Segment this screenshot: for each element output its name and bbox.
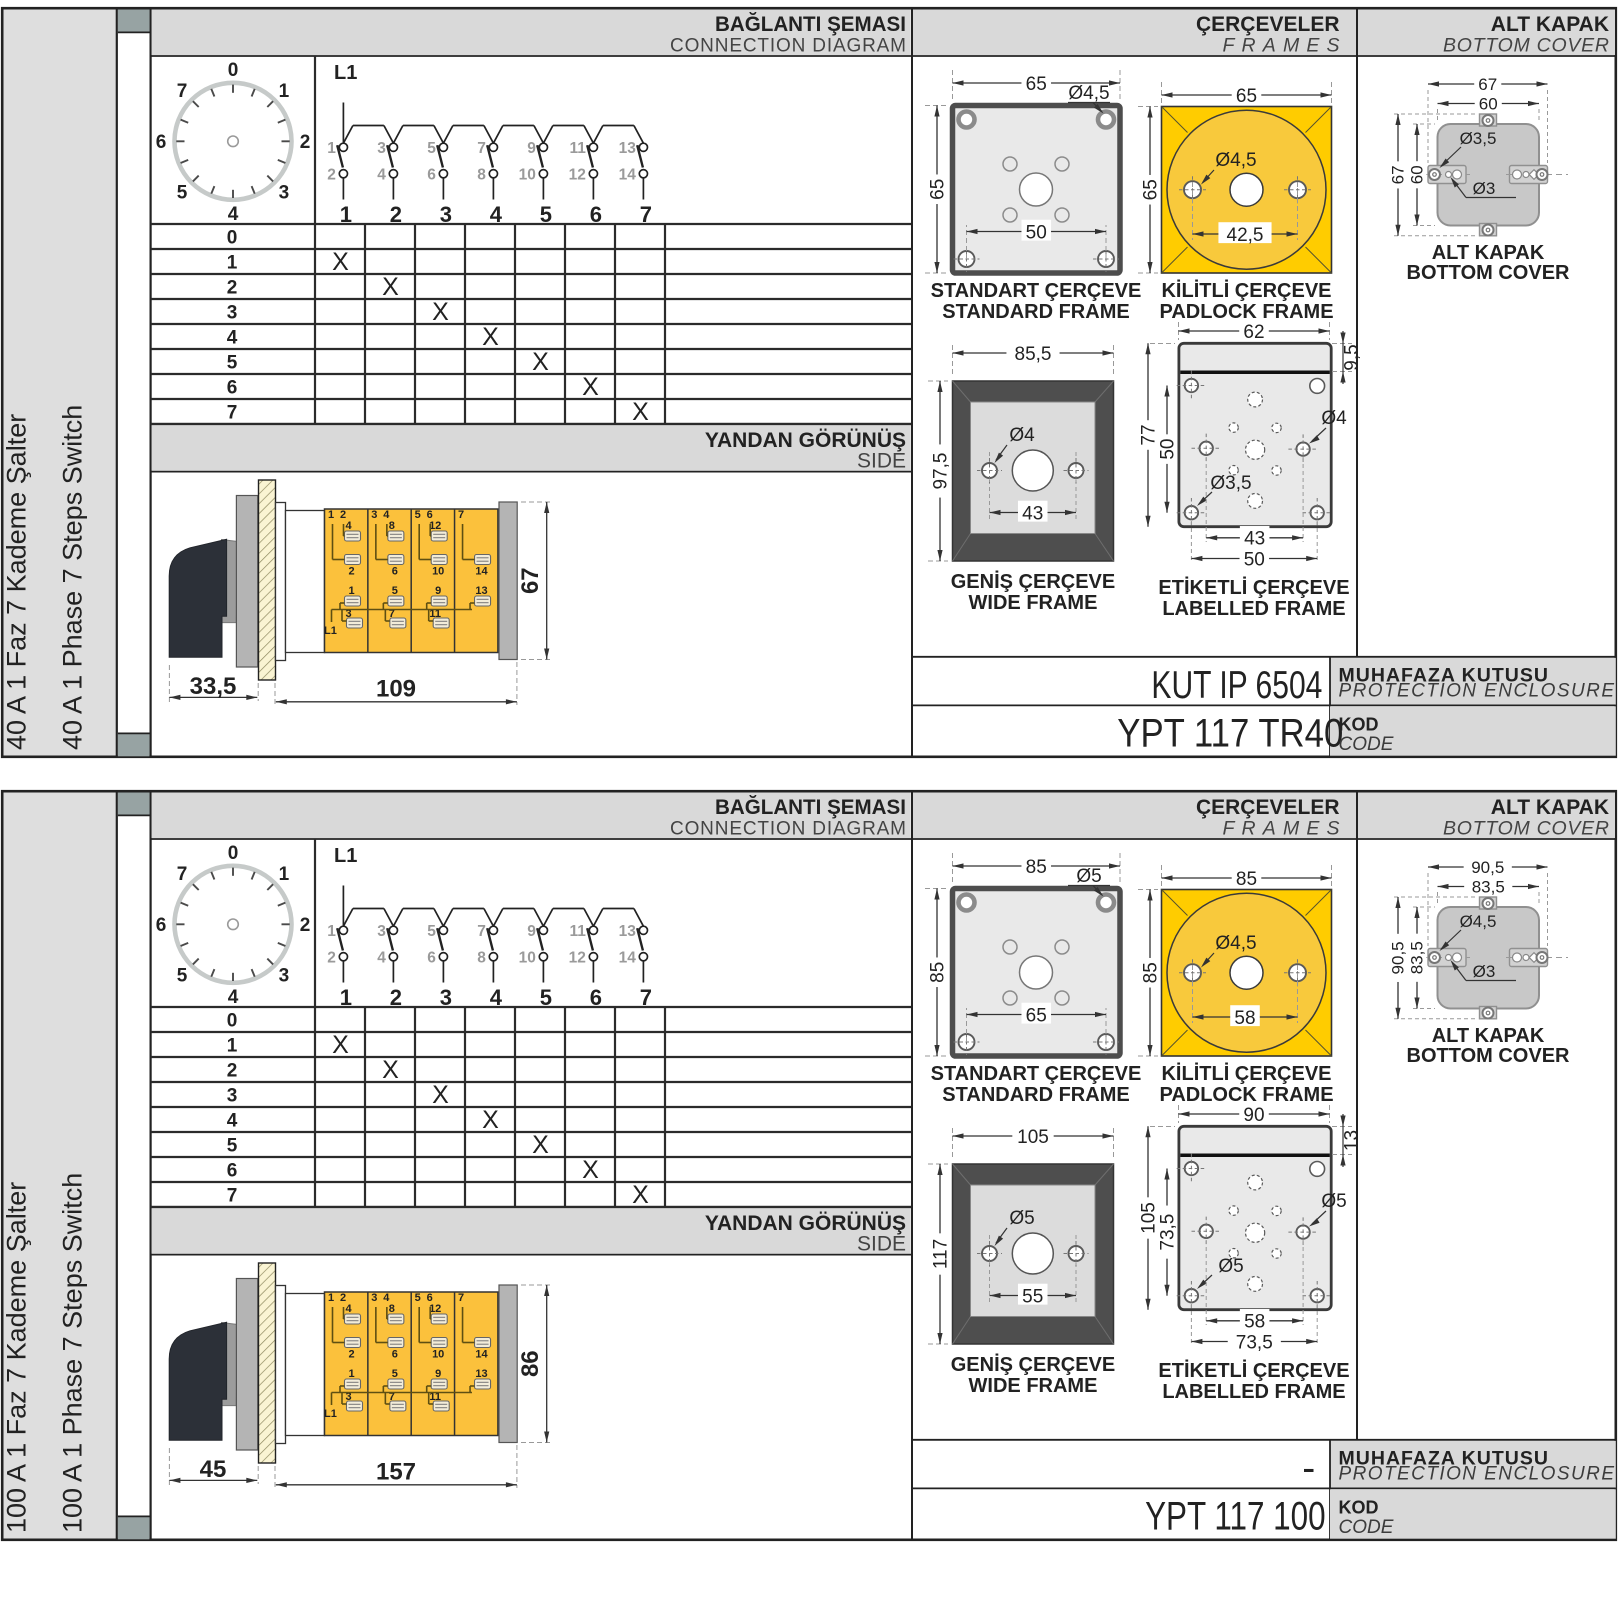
svg-text:2: 2	[348, 1349, 354, 1361]
svg-text:4: 4	[228, 987, 239, 1008]
svg-text:0: 0	[227, 228, 238, 249]
svg-text:65: 65	[1236, 86, 1257, 107]
svg-text:50: 50	[1244, 549, 1265, 570]
svg-text:X: X	[582, 373, 599, 401]
svg-text:85: 85	[1236, 869, 1257, 890]
svg-text:ALT KAPAK: ALT KAPAK	[1491, 13, 1609, 36]
svg-text:97,5: 97,5	[930, 453, 951, 490]
svg-text:5: 5	[177, 966, 188, 987]
svg-text:85: 85	[927, 962, 948, 983]
svg-text:73,5: 73,5	[1236, 1332, 1273, 1353]
svg-text:6: 6	[427, 950, 436, 967]
svg-text:Ø3,5: Ø3,5	[1460, 129, 1497, 148]
svg-text:100 A 1 Faz 7 Kademe Şalter: 100 A 1 Faz 7 Kademe Şalter	[2, 1182, 32, 1533]
svg-text:1: 1	[227, 253, 238, 274]
svg-text:4: 4	[228, 204, 239, 225]
svg-text:L1: L1	[324, 625, 337, 637]
svg-text:3: 3	[279, 966, 290, 987]
svg-text:2: 2	[340, 509, 346, 521]
svg-text:CODE: CODE	[1339, 734, 1394, 755]
svg-text:Ø4,5: Ø4,5	[1215, 150, 1256, 171]
svg-text:Ø3: Ø3	[1473, 962, 1496, 981]
svg-text:6: 6	[156, 915, 167, 936]
svg-text:2: 2	[327, 950, 336, 967]
svg-text:YPT 117 TR40: YPT 117 TR40	[1117, 712, 1343, 756]
svg-text:ALT KAPAK: ALT KAPAK	[1491, 796, 1609, 819]
svg-text:X: X	[382, 1056, 399, 1084]
svg-text:KOD: KOD	[1339, 715, 1379, 735]
svg-text:90: 90	[1243, 1105, 1264, 1126]
svg-text:ÇERÇEVELER: ÇERÇEVELER	[1196, 796, 1340, 819]
svg-text:58: 58	[1244, 1312, 1265, 1333]
svg-text:5: 5	[177, 183, 188, 204]
svg-text:2: 2	[300, 915, 311, 936]
svg-text:1: 1	[348, 1368, 354, 1380]
svg-text:60: 60	[1479, 95, 1498, 114]
svg-text:6: 6	[227, 1161, 238, 1182]
svg-text:3: 3	[227, 1086, 238, 1107]
svg-text:ALT KAPAK: ALT KAPAK	[1432, 1025, 1545, 1047]
svg-text:8: 8	[477, 950, 486, 967]
svg-text:73,5: 73,5	[1157, 1214, 1178, 1251]
svg-text:6: 6	[156, 132, 167, 153]
svg-text:65: 65	[1140, 179, 1161, 200]
svg-text:4: 4	[227, 1111, 238, 1132]
svg-text:33,5: 33,5	[190, 673, 237, 700]
svg-text:GENİŞ ÇERÇEVE: GENİŞ ÇERÇEVE	[951, 1353, 1115, 1376]
svg-text:5: 5	[415, 1292, 421, 1304]
svg-text:Ø5: Ø5	[1218, 1256, 1243, 1277]
svg-text:67: 67	[517, 567, 544, 594]
svg-text:4: 4	[377, 950, 386, 967]
svg-text:STANDARD FRAME: STANDARD FRAME	[942, 1084, 1129, 1106]
svg-text:8: 8	[477, 167, 486, 184]
svg-text:X: X	[532, 1131, 549, 1159]
svg-text:5: 5	[415, 509, 421, 521]
svg-text:BAĞLANTI ŞEMASI: BAĞLANTI ŞEMASI	[715, 12, 906, 36]
svg-text:2: 2	[300, 132, 311, 153]
svg-text:CODE: CODE	[1339, 1517, 1394, 1538]
svg-text:L1: L1	[334, 62, 357, 84]
svg-text:BOTTOM COVER: BOTTOM COVER	[1407, 1045, 1571, 1067]
svg-text:1: 1	[328, 509, 334, 521]
svg-text:7: 7	[177, 81, 188, 102]
svg-text:Ø4,5: Ø4,5	[1215, 933, 1256, 954]
svg-text:7: 7	[227, 1186, 238, 1207]
svg-text:40 A 1 Phase 7 Steps Switch: 40 A 1 Phase 7 Steps Switch	[58, 405, 88, 750]
svg-text:3: 3	[377, 923, 386, 940]
svg-text:ALT KAPAK: ALT KAPAK	[1432, 242, 1545, 264]
svg-text:2: 2	[227, 1061, 238, 1082]
svg-text:STANDART ÇERÇEVE: STANDART ÇERÇEVE	[931, 1063, 1142, 1085]
svg-text:6: 6	[392, 1349, 398, 1361]
svg-text:7: 7	[227, 403, 238, 424]
svg-text:Ø4,5: Ø4,5	[1068, 83, 1109, 104]
svg-text:Ø4: Ø4	[1009, 425, 1035, 446]
svg-text:11: 11	[570, 923, 587, 940]
svg-text:5: 5	[427, 923, 436, 940]
svg-text:50: 50	[1026, 222, 1047, 243]
svg-text:Ø3,5: Ø3,5	[1210, 473, 1251, 494]
svg-text:2: 2	[227, 278, 238, 299]
svg-text:X: X	[482, 1106, 499, 1134]
svg-text:X: X	[332, 1031, 349, 1059]
svg-text:4: 4	[383, 1292, 390, 1304]
svg-text:13: 13	[619, 140, 637, 157]
svg-text:4: 4	[227, 328, 238, 349]
svg-text:42,5: 42,5	[1227, 225, 1264, 246]
svg-text:ÇERÇEVELER: ÇERÇEVELER	[1196, 13, 1340, 36]
svg-text:-: -	[1302, 1447, 1315, 1490]
svg-text:X: X	[582, 1156, 599, 1184]
svg-text:2: 2	[340, 1292, 346, 1304]
svg-text:X: X	[482, 323, 499, 351]
svg-text:100 A 1 Phase 7 Steps Switch: 100 A 1 Phase 7 Steps Switch	[58, 1173, 88, 1533]
svg-text:7: 7	[458, 1292, 464, 1304]
svg-text:LABELLED FRAME: LABELLED FRAME	[1162, 598, 1345, 620]
svg-text:CONNECTION DIAGRAM: CONNECTION DIAGRAM	[670, 36, 906, 57]
svg-text:55: 55	[1022, 1286, 1043, 1307]
svg-text:L1: L1	[324, 1408, 337, 1420]
svg-text:157: 157	[376, 1458, 416, 1485]
svg-text:X: X	[632, 398, 649, 426]
svg-text:12: 12	[569, 950, 586, 967]
svg-text:Ø5: Ø5	[1321, 1191, 1346, 1212]
svg-text:Ø3: Ø3	[1473, 179, 1496, 198]
svg-text:7: 7	[477, 140, 486, 157]
svg-text:SIDE: SIDE	[857, 450, 906, 473]
svg-text:1: 1	[327, 923, 336, 940]
svg-text:SIDE: SIDE	[857, 1233, 906, 1256]
svg-text:6: 6	[427, 167, 436, 184]
svg-text:117: 117	[930, 1239, 951, 1269]
svg-text:109: 109	[376, 675, 416, 702]
svg-text:14: 14	[475, 1349, 488, 1361]
svg-text:11: 11	[570, 140, 587, 157]
svg-text:LABELLED FRAME: LABELLED FRAME	[1162, 1381, 1345, 1403]
svg-text:STANDART ÇERÇEVE: STANDART ÇERÇEVE	[931, 280, 1142, 302]
svg-text:65: 65	[1026, 74, 1047, 95]
svg-text:60: 60	[1408, 165, 1427, 184]
svg-text:KİLİTLİ ÇERÇEVE: KİLİTLİ ÇERÇEVE	[1161, 1062, 1331, 1085]
svg-text:YPT 117 100: YPT 117 100	[1145, 1495, 1326, 1539]
svg-text:43: 43	[1244, 529, 1265, 550]
svg-text:0: 0	[228, 843, 239, 864]
svg-text:13: 13	[475, 585, 487, 597]
svg-text:CONNECTION DIAGRAM: CONNECTION DIAGRAM	[670, 819, 906, 840]
svg-text:67: 67	[1478, 75, 1497, 94]
svg-text:7: 7	[458, 509, 464, 521]
svg-text:0: 0	[227, 1011, 238, 1032]
svg-text:3: 3	[279, 183, 290, 204]
svg-text:85: 85	[1026, 857, 1047, 878]
svg-text:85,5: 85,5	[1015, 344, 1052, 365]
svg-text:83,5: 83,5	[1472, 878, 1505, 897]
svg-text:67: 67	[1389, 165, 1408, 184]
svg-text:Ø5: Ø5	[1076, 866, 1101, 887]
svg-text:0: 0	[228, 60, 239, 81]
svg-text:BAĞLANTI ŞEMASI: BAĞLANTI ŞEMASI	[715, 795, 906, 819]
svg-text:7: 7	[477, 923, 486, 940]
svg-text:9,5: 9,5	[1342, 344, 1363, 370]
svg-text:X: X	[432, 298, 449, 326]
svg-text:X: X	[332, 248, 349, 276]
svg-text:WIDE FRAME: WIDE FRAME	[969, 1375, 1098, 1397]
svg-text:10: 10	[432, 566, 444, 578]
svg-text:Ø5: Ø5	[1009, 1208, 1034, 1229]
svg-text:58: 58	[1234, 1008, 1255, 1029]
svg-text:ETİKETLİ ÇERÇEVE: ETİKETLİ ÇERÇEVE	[1158, 1359, 1349, 1382]
svg-text:5: 5	[427, 140, 436, 157]
svg-text:2: 2	[327, 167, 336, 184]
svg-text:Ø4: Ø4	[1321, 408, 1347, 429]
svg-text:40 A 1 Faz 7 Kademe Şalter: 40 A 1 Faz 7 Kademe Şalter	[2, 414, 32, 750]
svg-text:14: 14	[475, 566, 488, 578]
svg-text:3: 3	[227, 303, 238, 324]
svg-text:14: 14	[619, 167, 637, 184]
svg-text:KOD: KOD	[1339, 1498, 1379, 1518]
svg-text:6: 6	[392, 566, 398, 578]
svg-text:13: 13	[619, 923, 637, 940]
svg-text:8: 8	[389, 520, 395, 532]
svg-text:X: X	[632, 1181, 649, 1209]
svg-text:10: 10	[519, 950, 536, 967]
svg-text:9: 9	[435, 1368, 441, 1380]
svg-text:4: 4	[345, 520, 352, 532]
svg-text:5: 5	[392, 1368, 398, 1380]
svg-text:X: X	[532, 348, 549, 376]
svg-text:50: 50	[1157, 439, 1178, 460]
svg-text:L1: L1	[334, 845, 357, 867]
svg-text:2: 2	[348, 566, 354, 578]
svg-text:9: 9	[527, 140, 536, 157]
svg-text:86: 86	[517, 1350, 544, 1377]
svg-text:8: 8	[389, 1303, 395, 1315]
svg-text:1: 1	[227, 1036, 238, 1057]
svg-text:5: 5	[227, 1136, 238, 1157]
svg-text:Ø4,5: Ø4,5	[1460, 912, 1497, 931]
svg-text:ETİKETLİ ÇERÇEVE: ETİKETLİ ÇERÇEVE	[1158, 576, 1349, 599]
svg-text:X: X	[382, 273, 399, 301]
svg-text:3: 3	[371, 1292, 377, 1304]
svg-text:85: 85	[1140, 962, 1161, 983]
svg-text:5: 5	[392, 585, 398, 597]
svg-text:90,5: 90,5	[1389, 941, 1408, 974]
svg-text:KUT IP 6504: KUT IP 6504	[1151, 664, 1322, 707]
svg-text:1: 1	[327, 140, 336, 157]
svg-text:4: 4	[345, 1303, 352, 1315]
svg-text:1: 1	[279, 864, 290, 885]
svg-text:GENİŞ ÇERÇEVE: GENİŞ ÇERÇEVE	[951, 570, 1115, 593]
svg-text:62: 62	[1243, 322, 1264, 343]
svg-text:9: 9	[527, 923, 536, 940]
svg-text:KİLİTLİ ÇERÇEVE: KİLİTLİ ÇERÇEVE	[1161, 279, 1331, 302]
svg-text:43: 43	[1022, 503, 1043, 524]
svg-text:1: 1	[348, 585, 354, 597]
svg-text:10: 10	[432, 1349, 444, 1361]
svg-text:6: 6	[427, 509, 433, 521]
svg-text:90,5: 90,5	[1471, 858, 1504, 877]
svg-text:X: X	[432, 1081, 449, 1109]
svg-text:5: 5	[227, 353, 238, 374]
svg-text:BOTTOM COVER: BOTTOM COVER	[1407, 262, 1571, 284]
svg-text:13: 13	[1342, 1130, 1363, 1151]
svg-text:105: 105	[1017, 1127, 1049, 1148]
svg-text:45: 45	[200, 1456, 227, 1483]
svg-text:3: 3	[371, 509, 377, 521]
svg-text:4: 4	[383, 509, 390, 521]
svg-text:WIDE FRAME: WIDE FRAME	[969, 592, 1098, 614]
svg-text:83,5: 83,5	[1408, 941, 1427, 974]
svg-text:BOTTOM COVER: BOTTOM COVER	[1443, 818, 1609, 840]
svg-text:14: 14	[619, 950, 637, 967]
svg-text:13: 13	[475, 1368, 487, 1380]
svg-text:4: 4	[377, 167, 386, 184]
svg-text:65: 65	[1026, 1005, 1047, 1026]
svg-text:1: 1	[328, 1292, 334, 1304]
svg-text:10: 10	[519, 167, 536, 184]
svg-text:3: 3	[377, 140, 386, 157]
svg-text:1: 1	[279, 81, 290, 102]
svg-text:65: 65	[927, 179, 948, 200]
svg-text:BOTTOM COVER: BOTTOM COVER	[1443, 35, 1609, 57]
svg-text:7: 7	[177, 864, 188, 885]
svg-text:12: 12	[569, 167, 586, 184]
svg-text:6: 6	[427, 1292, 433, 1304]
svg-text:STANDARD FRAME: STANDARD FRAME	[942, 301, 1129, 323]
svg-text:6: 6	[227, 378, 238, 399]
svg-text:9: 9	[435, 585, 441, 597]
